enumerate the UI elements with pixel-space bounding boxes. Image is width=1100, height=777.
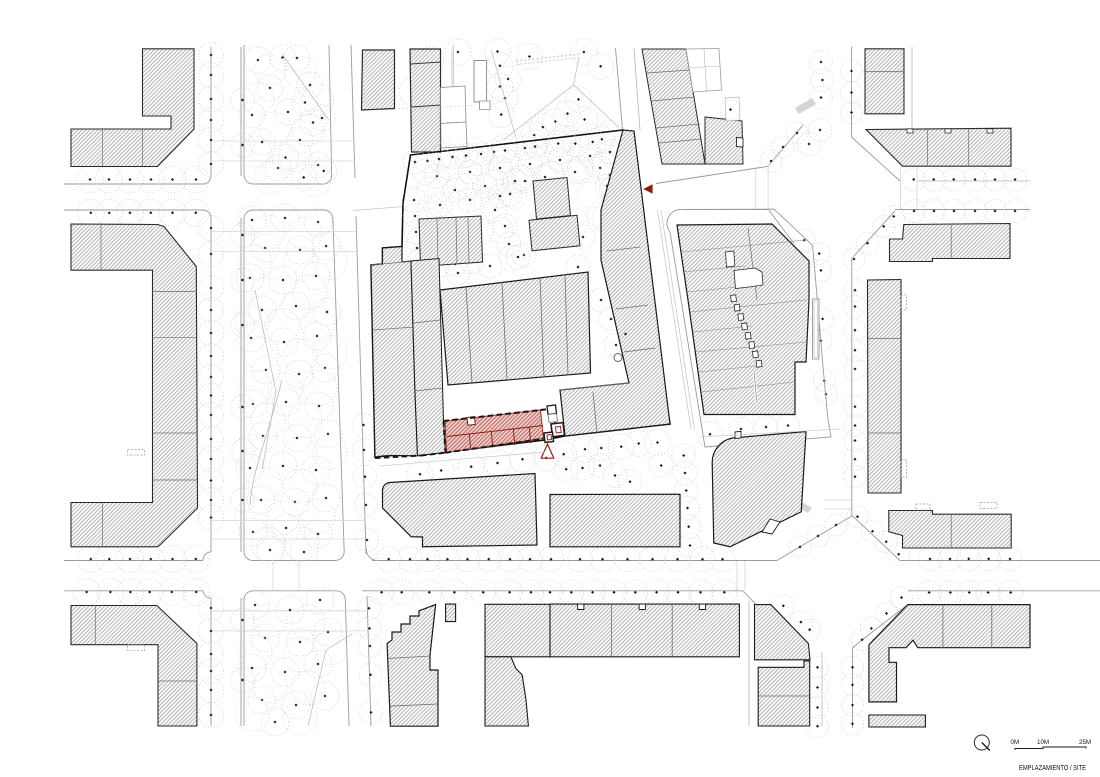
svg-text:10M: 10M xyxy=(1037,739,1049,746)
svg-text:25M: 25M xyxy=(1079,739,1091,746)
svg-text:0M: 0M xyxy=(1011,739,1020,746)
svg-text:EMPLAZAMIENTO / SITE: EMPLAZAMIENTO / SITE xyxy=(1019,765,1086,772)
